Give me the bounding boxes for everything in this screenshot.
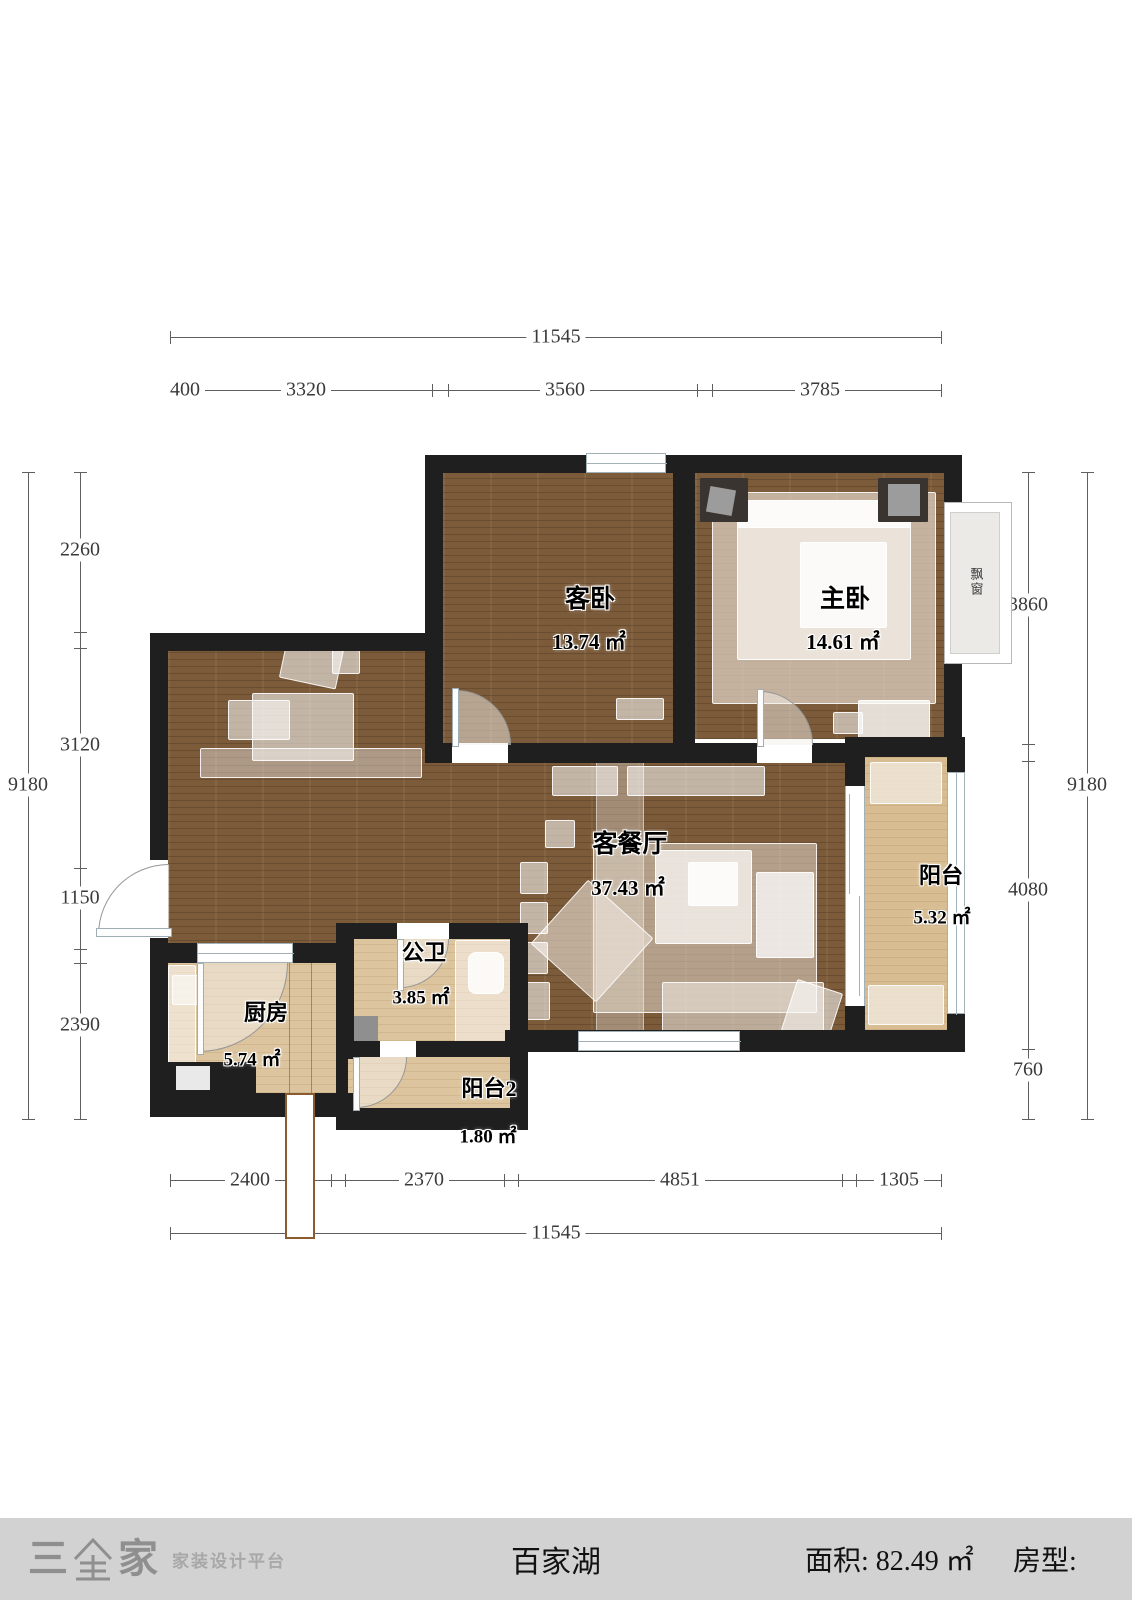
- house-logo-icon: [70, 1535, 116, 1583]
- area-info: 面积: 82.49 ㎡: [805, 1539, 974, 1579]
- side-table: [545, 820, 575, 848]
- room-area-balcony: 5.32 ㎡: [913, 903, 970, 930]
- dim-label: 2260: [55, 539, 105, 562]
- wall: [673, 473, 695, 745]
- dim-label: 1150: [55, 887, 104, 910]
- door-opening: [757, 743, 812, 763]
- mullion: [198, 953, 294, 954]
- tv-cabinet: [627, 766, 765, 796]
- stove: [176, 1066, 210, 1090]
- room-area-bathroom: 3.85 ㎡: [392, 983, 449, 1010]
- wall: [425, 455, 962, 473]
- area-label: 面积:: [805, 1546, 869, 1577]
- furniture: [332, 650, 360, 674]
- wall: [425, 455, 443, 763]
- area-value: 82.49 ㎡: [876, 1546, 974, 1577]
- dim-label: 3560: [540, 379, 590, 402]
- room-label-master-bedroom: 主卧: [820, 579, 870, 615]
- room-label-balcony2: 阳台2: [461, 1071, 516, 1103]
- project-name: 百家湖: [511, 1537, 601, 1581]
- dim-label: 3120: [55, 734, 105, 757]
- window: [947, 772, 965, 1014]
- brand-char-2: 家: [118, 1539, 158, 1579]
- stool: [833, 712, 863, 734]
- room-label-bathroom: 公卫: [402, 935, 446, 967]
- chair: [520, 862, 548, 894]
- wall: [510, 923, 528, 1059]
- brand-char-1: 三: [28, 1539, 68, 1579]
- tick: [170, 331, 171, 344]
- wall: [150, 1093, 360, 1117]
- bay-window-label: 飘窗: [967, 567, 986, 597]
- sofa-cushion: [688, 862, 738, 906]
- door-leaf: [353, 1057, 360, 1111]
- room-area-living-dining: 37.43 ㎡: [591, 872, 665, 902]
- dim-label: 3785: [795, 379, 845, 402]
- rug: [200, 748, 422, 778]
- dim-label: 11545: [526, 326, 585, 349]
- wall: [336, 1041, 528, 1057]
- door-opening: [380, 1041, 416, 1057]
- tick: [941, 331, 942, 344]
- flue-duct: [285, 1093, 315, 1239]
- kitchen-door-frame: [197, 943, 293, 963]
- dim-label: 4851: [655, 1169, 705, 1192]
- dim-label: 1305: [874, 1169, 924, 1192]
- dim-label: 9180: [3, 774, 53, 797]
- brand-tagline: 家装设计平台: [172, 1547, 286, 1572]
- door-leaf: [197, 963, 204, 1055]
- window: [586, 453, 666, 473]
- furniture: [228, 700, 290, 740]
- room-area-kitchen: 5.74 ㎡: [223, 1045, 280, 1072]
- footer-bar: 三 家 家装设计平台 百家湖 面积: 82.49 ㎡ 房型:: [0, 1518, 1132, 1600]
- lamp: [888, 484, 920, 516]
- dim-label: 3320: [281, 379, 331, 402]
- balcony-mat: [868, 985, 944, 1025]
- dim-label: 400: [165, 379, 205, 402]
- brand-logo: 三 家 家装设计平台: [28, 1532, 286, 1586]
- room-label-guest-bedroom: 客卧: [565, 579, 615, 615]
- dim-label: 760: [1008, 1059, 1048, 1082]
- room-area-balcony2: 1.80 ㎡: [459, 1122, 516, 1149]
- tv-cabinet: [552, 766, 618, 796]
- room-label-kitchen: 厨房: [244, 995, 288, 1027]
- furniture: [616, 698, 664, 720]
- room-area-guest-bedroom: 13.74 ㎡: [552, 626, 626, 656]
- door-leaf: [452, 688, 459, 747]
- toilet: [468, 952, 504, 994]
- balcony-mat: [870, 762, 942, 804]
- flue-line: [311, 963, 312, 1093]
- room-area-master-bedroom: 14.61 ㎡: [806, 626, 880, 656]
- sliding-door: [845, 786, 865, 1006]
- dim-label: 2390: [55, 1014, 105, 1037]
- window: [578, 1031, 740, 1051]
- dim-label: 11545: [526, 1222, 585, 1245]
- wall: [150, 633, 425, 651]
- house-type-label: 房型:: [1013, 1539, 1077, 1579]
- dim-label: 4080: [1003, 879, 1053, 902]
- dim-line-right-segments: [1028, 472, 1029, 1120]
- dim-label: 2370: [399, 1169, 449, 1192]
- door-opening: [452, 743, 508, 763]
- dim-label: 9180: [1062, 774, 1112, 797]
- flue-line: [289, 963, 290, 1093]
- sink: [354, 1016, 378, 1044]
- floorplan-page: 11545 400 3320 3560 3785 2400 2370 4851 …: [0, 0, 1132, 1600]
- entry-door-leaf: [96, 928, 172, 937]
- dim-label: 2400: [225, 1169, 275, 1192]
- room-label-living-dining: 客餐厅: [592, 824, 667, 860]
- room-label-balcony: 阳台: [919, 858, 963, 890]
- door-leaf: [757, 689, 764, 747]
- entry-door-swing: [98, 864, 169, 935]
- coffee-table: [756, 872, 814, 958]
- furniture: [552, 1062, 594, 1092]
- lamp: [706, 486, 736, 516]
